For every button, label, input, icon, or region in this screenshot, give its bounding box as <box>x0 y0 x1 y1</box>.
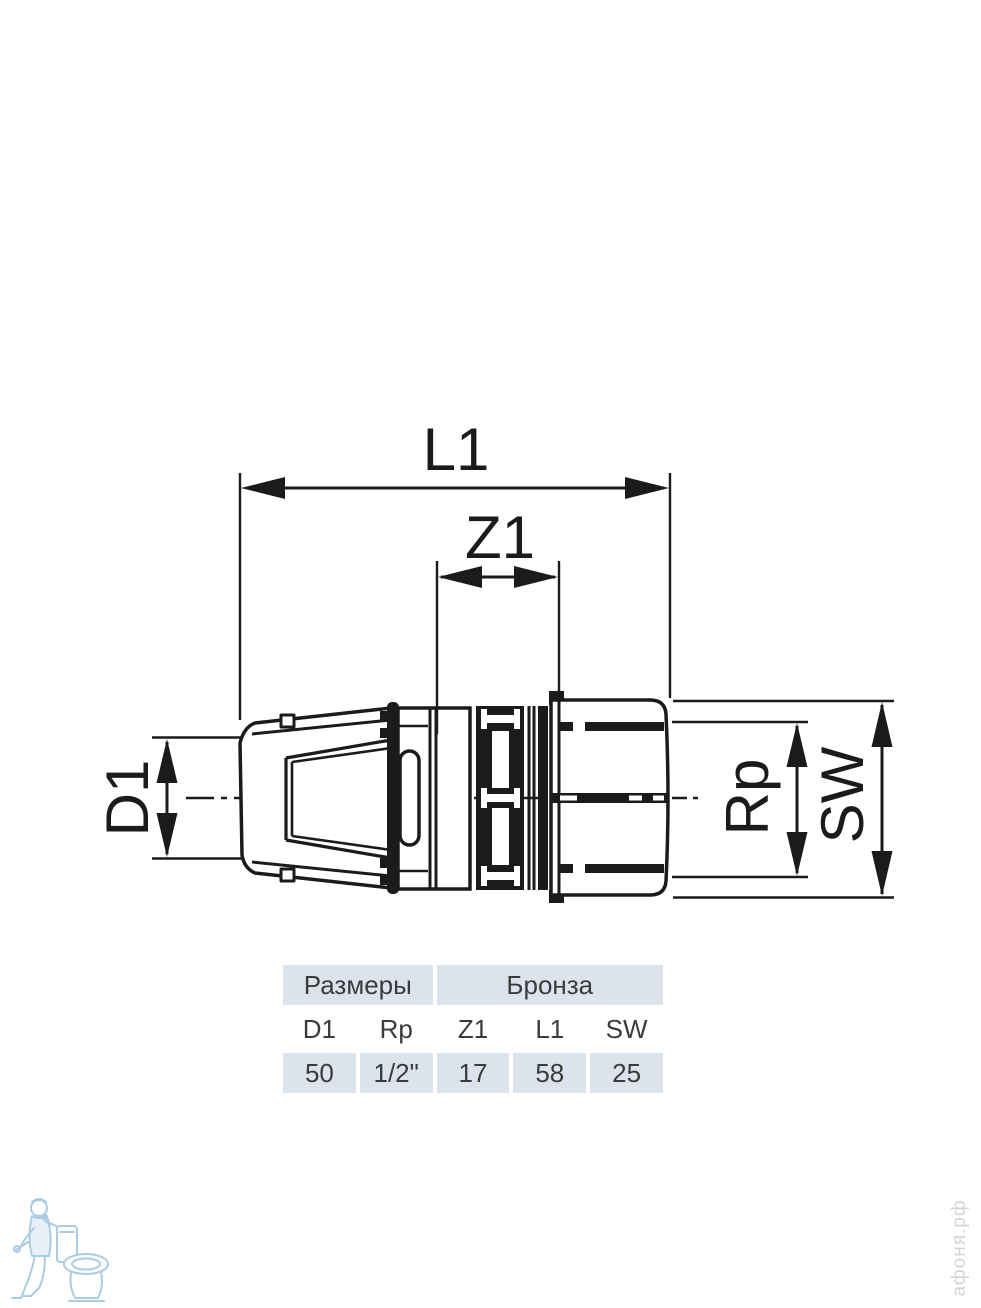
dim-label-l1: L1 <box>423 416 490 483</box>
table-group-header-material: Бронза <box>437 965 663 1005</box>
plumber-with-toilet-icon <box>8 1186 118 1306</box>
dimension-z1: Z1 <box>437 504 559 734</box>
site-watermark-text: афоня.рф <box>949 1199 971 1296</box>
dim-label-sw: SW <box>809 746 876 843</box>
spec-table: Размеры Бронза D1 Rp Z1 L1 SW 50 1/2" 17… <box>283 965 663 1093</box>
dim-label-z1: Z1 <box>465 504 535 571</box>
table-col-l1: L1 <box>513 1009 586 1049</box>
product-dimension-page: L1 Z1 D1 Rp <box>0 0 981 1308</box>
table-value-d1: 50 <box>283 1053 356 1093</box>
dim-label-d1: D1 <box>94 760 161 837</box>
table-value-sw: 25 <box>590 1053 663 1093</box>
dimension-rp: Rp <box>672 722 808 877</box>
table-value-l1: 58 <box>513 1053 586 1093</box>
table-col-d1: D1 <box>283 1009 356 1049</box>
table-group-header-sizes: Размеры <box>283 965 433 1005</box>
fitting-technical-drawing: L1 Z1 D1 Rp <box>0 0 981 1308</box>
table-value-z1: 17 <box>437 1053 510 1093</box>
table-col-rp: Rp <box>360 1009 433 1049</box>
table-col-sw: SW <box>590 1009 663 1049</box>
sleeve-section <box>398 708 470 889</box>
dimension-d1: D1 <box>94 738 242 859</box>
dim-label-rp: Rp <box>714 759 781 836</box>
thread-nut-section <box>551 700 668 895</box>
collet-section <box>240 708 391 888</box>
table-col-z1: Z1 <box>437 1009 510 1049</box>
dimension-sw: SW <box>673 701 894 898</box>
dimension-l1: L1 <box>240 416 670 720</box>
table-value-rp: 1/2" <box>360 1053 433 1093</box>
